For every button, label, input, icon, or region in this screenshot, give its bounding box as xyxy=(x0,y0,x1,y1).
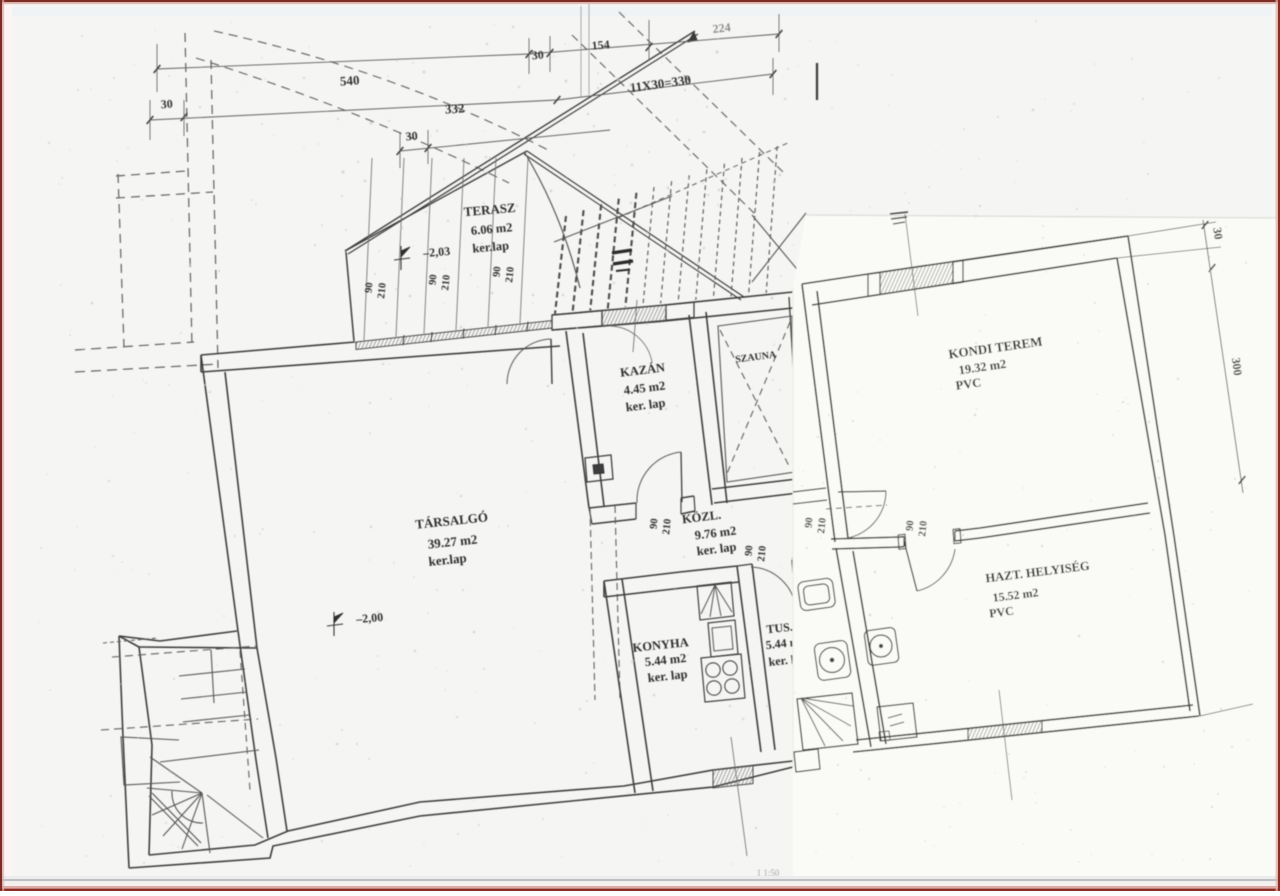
svg-text:90: 90 xyxy=(491,266,503,278)
svg-text:300: 300 xyxy=(1229,357,1245,377)
svg-text:210: 210 xyxy=(917,520,930,537)
svg-text:332: 332 xyxy=(444,100,464,116)
svg-text:210: 210 xyxy=(756,545,769,562)
svg-text:210: 210 xyxy=(661,518,674,535)
svg-text:TUS.: TUS. xyxy=(766,620,794,637)
svg-text:–2,03: –2,03 xyxy=(422,244,451,260)
svg-text:210: 210 xyxy=(440,274,453,291)
svg-text:210: 210 xyxy=(504,266,517,283)
svg-text:90: 90 xyxy=(803,517,815,529)
svg-text:210: 210 xyxy=(376,282,389,299)
svg-text:224: 224 xyxy=(712,20,731,36)
svg-text:540: 540 xyxy=(339,72,359,88)
svg-text:–2,00: –2,00 xyxy=(355,610,384,626)
svg-text:30: 30 xyxy=(531,48,544,63)
svg-text:30: 30 xyxy=(1210,227,1226,241)
svg-text:90: 90 xyxy=(648,518,660,530)
svg-text:90: 90 xyxy=(363,282,375,294)
svg-text:210: 210 xyxy=(816,517,829,534)
svg-text:90: 90 xyxy=(904,520,916,532)
svg-text:30: 30 xyxy=(160,97,173,112)
svg-text:154: 154 xyxy=(591,37,610,53)
svg-text:90: 90 xyxy=(743,545,755,557)
svg-text:90: 90 xyxy=(427,274,439,286)
svg-text:PVC: PVC xyxy=(988,604,1014,621)
svg-text:30: 30 xyxy=(405,129,418,144)
